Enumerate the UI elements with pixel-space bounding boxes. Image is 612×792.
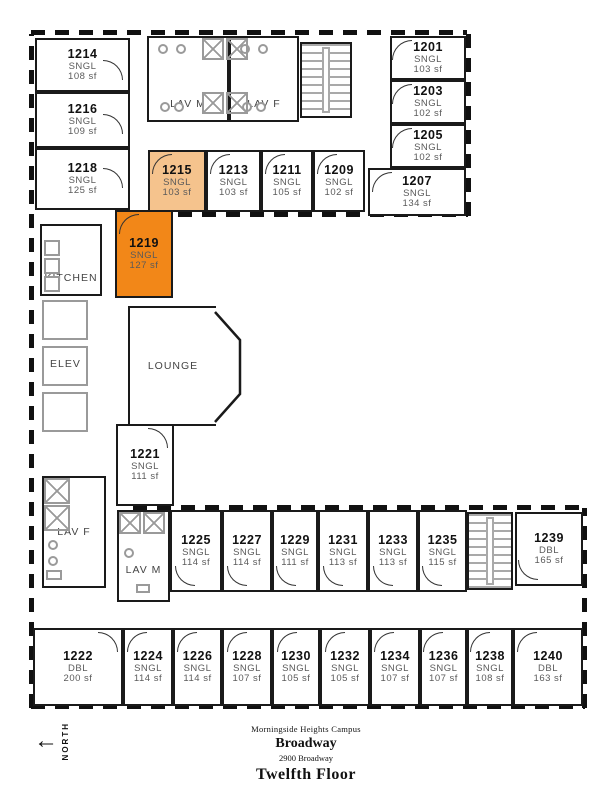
sink-icon (256, 102, 266, 112)
sink-icon (174, 102, 184, 112)
shower-icon (119, 512, 141, 534)
lounge-bay-window (214, 308, 244, 426)
room-area: 111 sf (131, 472, 158, 482)
room-area: 108 sf (68, 72, 97, 82)
room-area: 114 sf (183, 674, 211, 684)
room-number: 1207 (402, 175, 432, 189)
sink-icon (124, 548, 134, 558)
floor-name: Twelfth Floor (0, 766, 612, 784)
room-number: 1230 (281, 650, 311, 664)
room-area: 107 sf (381, 674, 410, 684)
room-area: 105 sf (273, 188, 302, 198)
shower-icon (226, 92, 248, 114)
room-number: 1235 (428, 534, 458, 548)
room-number: 1240 (533, 650, 563, 664)
shower-icon (44, 505, 70, 531)
room-area: 105 sf (331, 674, 360, 684)
room-number: 1216 (68, 103, 98, 117)
building-address: 2900 Broadway (0, 753, 612, 763)
room-number: 1214 (68, 48, 98, 62)
sink-icon (44, 258, 60, 274)
room-area: 102 sf (414, 109, 443, 119)
toilet-icon (176, 44, 186, 54)
room-1233[interactable]: 1233 SNGL 113 sf (368, 510, 418, 592)
room-1232[interactable]: 1232 SNGL 105 sf (320, 628, 370, 706)
room-number: 1238 (475, 650, 505, 664)
room-area: 200 sf (64, 674, 93, 684)
shower-icon (143, 512, 165, 534)
stairwell-upper (300, 42, 352, 118)
room-number: 1225 (181, 534, 211, 548)
elevator-shaft (42, 300, 88, 340)
room-area: 102 sf (325, 188, 354, 198)
room-area: 103 sf (163, 188, 192, 198)
title-block: Morningside Heights Campus Broadway 2900… (0, 724, 612, 784)
stove-icon (44, 240, 60, 256)
room-1213[interactable]: 1213 SNGL 103 sf (206, 150, 261, 212)
room-area: 163 sf (534, 674, 563, 684)
stair-rail (322, 47, 330, 113)
room-number: 1227 (232, 534, 262, 548)
room-number: 1203 (413, 85, 443, 99)
campus-name: Morningside Heights Campus (0, 724, 612, 734)
room-1225[interactable]: 1225 SNGL 114 sf (170, 510, 222, 592)
room-number: 1233 (378, 534, 408, 548)
room-1211[interactable]: 1211 SNGL 105 sf (261, 150, 313, 212)
room-area: 134 sf (403, 199, 432, 209)
room-number: 1234 (380, 650, 410, 664)
room-number: 1224 (133, 650, 163, 664)
toilet-icon (136, 584, 150, 593)
room-number: 1231 (328, 534, 358, 548)
window-strip-top (31, 30, 467, 35)
lounge-label: LOUNGE (148, 360, 198, 372)
elevator-label: ELEV (48, 358, 83, 370)
room-number: 1221 (130, 448, 160, 462)
toilet-icon (46, 570, 62, 580)
room-number: 1229 (280, 534, 310, 548)
room-number: 1222 (63, 650, 93, 664)
room-number: 1226 (183, 650, 213, 664)
room-area: 127 sf (130, 261, 159, 271)
sink-icon (160, 102, 170, 112)
room-number: 1228 (232, 650, 262, 664)
room-number: 1201 (413, 41, 443, 55)
room-1231[interactable]: 1231 SNGL 113 sf (318, 510, 368, 592)
counter-icon (44, 276, 60, 292)
shower-icon (202, 38, 224, 60)
toilet-icon (258, 44, 268, 54)
shower-icon (44, 478, 70, 504)
room-area: 108 sf (476, 674, 505, 684)
room-area: 114 sf (134, 674, 162, 684)
room-area: 125 sf (68, 186, 97, 196)
toilet-icon (158, 44, 168, 54)
shower-icon (226, 38, 248, 60)
room-1227[interactable]: 1227 SNGL 114 sf (222, 510, 272, 592)
room-1221[interactable]: 1221 SNGL 111 sf (116, 424, 174, 506)
elevator-shaft (42, 392, 88, 432)
lav-m-lower-label: LAV M (126, 564, 162, 576)
stairwell-lower (467, 512, 513, 590)
window-strip-left (29, 34, 34, 708)
room-area: 103 sf (219, 188, 248, 198)
room-1235[interactable]: 1235 SNGL 115 sf (418, 510, 467, 592)
room-area: 107 sf (429, 674, 458, 684)
room-number: 1239 (534, 532, 564, 546)
room-1228[interactable]: 1228 SNGL 107 sf (222, 628, 272, 706)
room-area: 165 sf (535, 556, 564, 566)
room-area: 102 sf (414, 153, 443, 163)
room-area: 109 sf (68, 127, 97, 137)
room-area: 105 sf (282, 674, 311, 684)
room-number: 1218 (68, 162, 98, 176)
room-area: 103 sf (414, 65, 443, 75)
room-number: 1205 (413, 129, 443, 143)
room-number: 1236 (429, 650, 459, 664)
room-number: 1232 (330, 650, 360, 664)
sink-icon (48, 556, 58, 566)
window-strip-right-upper (466, 34, 471, 216)
lounge: LOUNGE (128, 306, 216, 426)
stair-rail (486, 517, 494, 585)
room-area: 107 sf (233, 674, 262, 684)
room-number: 1219 (129, 237, 159, 251)
floor-plan: 1214 SNGL 108 sf 1216 SNGL 109 sf 1218 S… (0, 0, 612, 792)
shower-icon (202, 92, 224, 114)
sink-icon (48, 540, 58, 550)
building-name: Broadway (0, 736, 612, 752)
room-1209[interactable]: 1209 SNGL 102 sf (313, 150, 365, 212)
